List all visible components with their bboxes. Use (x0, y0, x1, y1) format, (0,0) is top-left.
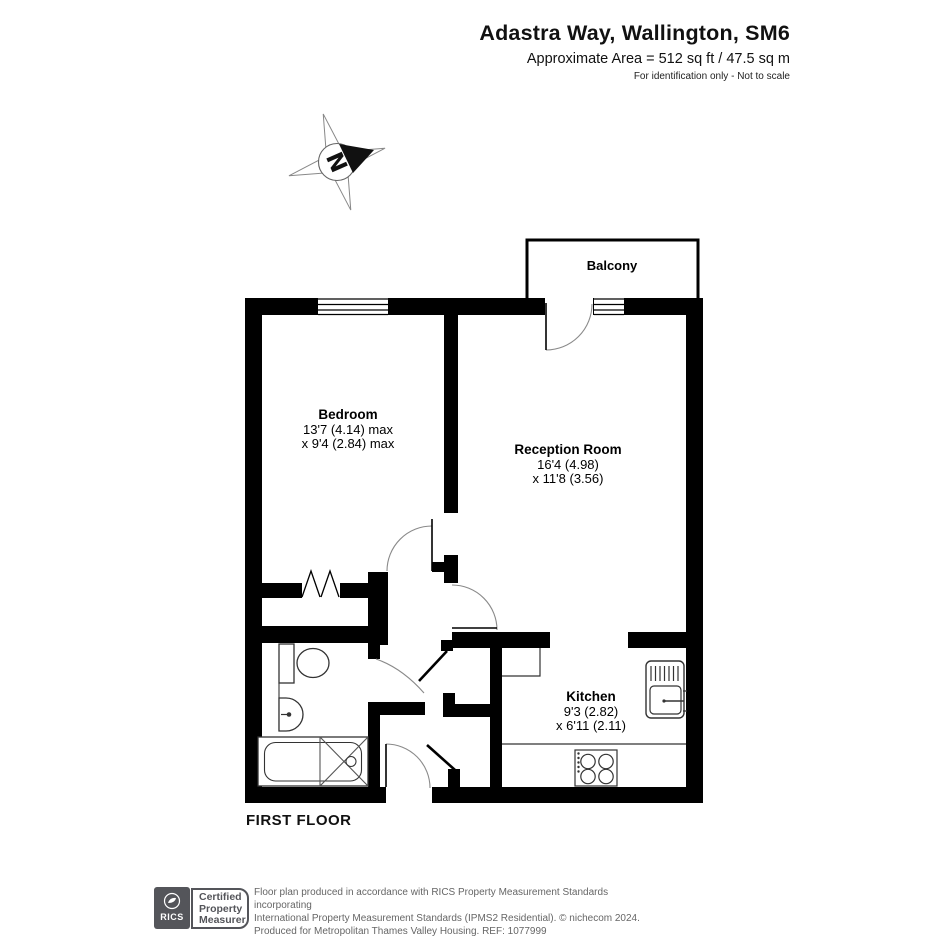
reception-label: Reception Room 16'4 (4.98) x 11'8 (3.56) (514, 443, 621, 487)
reception-window (594, 298, 624, 316)
badge-line3: Measurer (199, 915, 247, 927)
basin (279, 683, 303, 731)
footer-line1: Floor plan produced in accordance with R… (254, 886, 654, 912)
footer-line2: International Property Measurement Stand… (254, 912, 654, 925)
entrance-door (386, 744, 430, 788)
badge-line1: Certified (199, 892, 247, 904)
bedroom-dim2: x 9'4 (2.84) max (302, 437, 395, 452)
bedroom-label: Bedroom 13'7 (4.14) max x 9'4 (2.84) max (302, 408, 395, 452)
footer-disclaimer: Floor plan produced in accordance with R… (254, 886, 654, 938)
cupboard-door (427, 745, 455, 770)
toilet (279, 644, 329, 683)
bedroom-door (387, 519, 432, 571)
bathroom-door (376, 651, 447, 693)
floorplan-page: N (0, 0, 945, 945)
reception-dim1: 16'4 (4.98) (514, 458, 621, 473)
rics-logo-text: RICS (154, 912, 190, 922)
reception-door (452, 585, 497, 630)
floor-title: FIRST FLOOR (246, 812, 352, 829)
compass-rose-icon: N (275, 100, 399, 224)
footer-line3: Produced for Metropolitan Thames Valley … (254, 925, 654, 938)
kitchen-dim1: 9'3 (2.82) (556, 705, 626, 720)
kitchen-name: Kitchen (556, 690, 626, 705)
kitchen-sink (646, 661, 687, 718)
bathtub (258, 737, 368, 786)
approximate-area: Approximate Area = 512 sq ft / 47.5 sq m (527, 51, 790, 67)
disclaimer: For identification only - Not to scale (634, 71, 790, 82)
kitchen-hob (575, 750, 617, 786)
page-title: Adastra Way, Wallington, SM6 (479, 21, 790, 46)
exterior-walls (245, 298, 703, 803)
kitchen-dim2: x 6'11 (2.11) (556, 719, 626, 734)
certified-measurer-badge: Certified Property Measurer (191, 888, 249, 929)
reception-dim2: x 11'8 (3.56) (514, 472, 621, 487)
kitchen-label: Kitchen 9'3 (2.82) x 6'11 (2.11) (556, 690, 626, 734)
rics-logo (154, 887, 190, 929)
floor-plan-drawing: N (0, 0, 945, 945)
reception-name: Reception Room (514, 443, 621, 458)
bedroom-name: Bedroom (302, 408, 395, 423)
bedroom-window (318, 298, 388, 316)
bedroom-dim1: 13'7 (4.14) max (302, 423, 395, 438)
balcony-label: Balcony (587, 258, 638, 273)
